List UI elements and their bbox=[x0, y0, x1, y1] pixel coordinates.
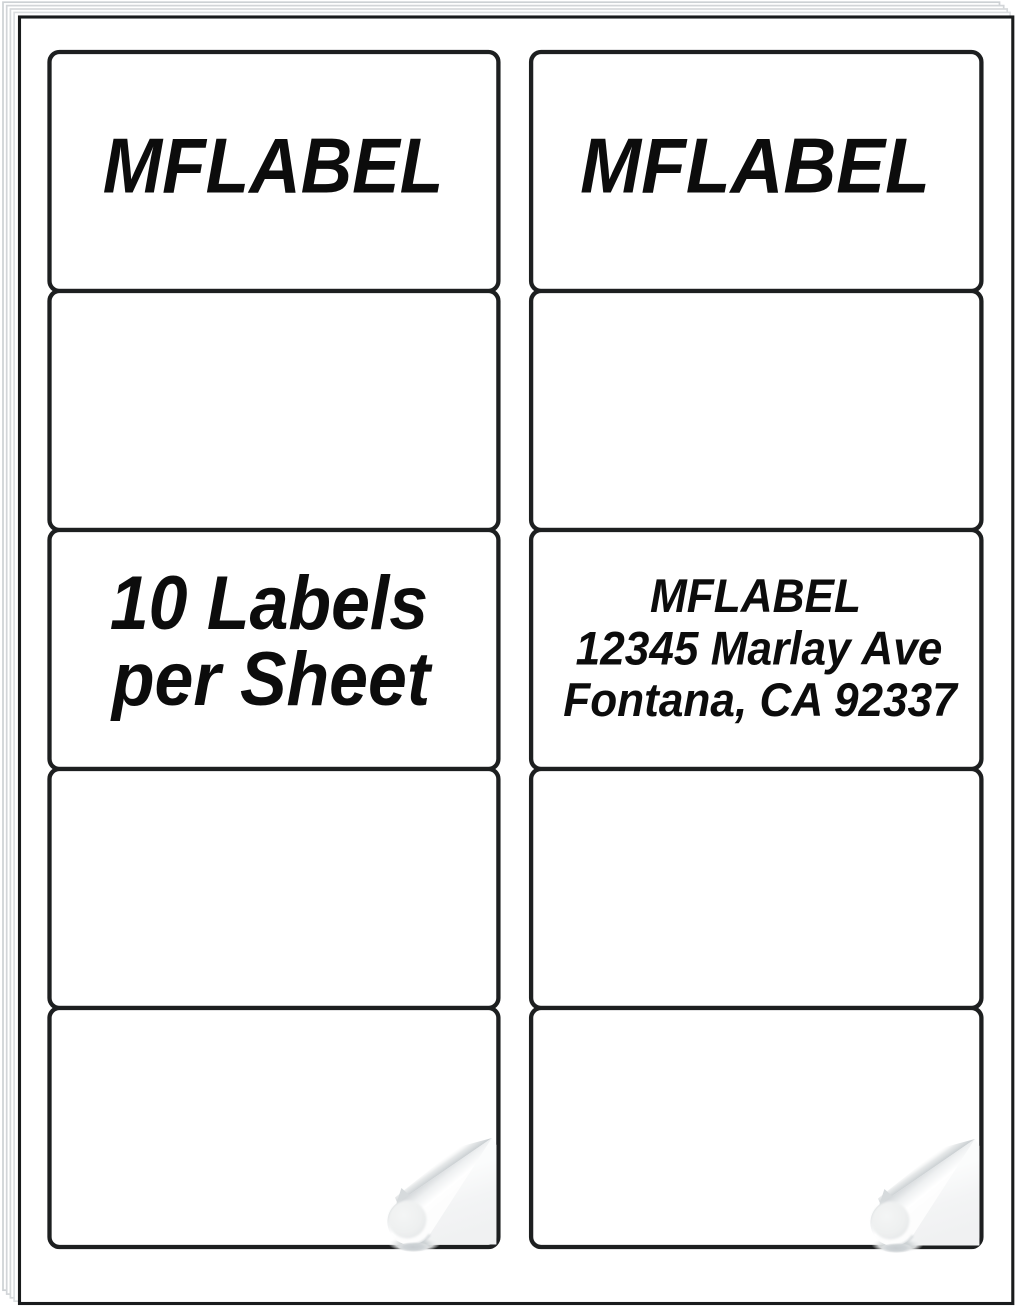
svg-text:MFLABEL: MFLABEL bbox=[580, 123, 930, 209]
svg-text:MFLABEL: MFLABEL bbox=[103, 123, 444, 209]
svg-text:Fontana, CA 92337: Fontana, CA 92337 bbox=[563, 673, 959, 727]
svg-text:12345 Marlay Ave: 12345 Marlay Ave bbox=[576, 621, 943, 675]
svg-text:10 Labels: 10 Labels bbox=[110, 560, 428, 646]
svg-text:MFLABEL: MFLABEL bbox=[650, 569, 861, 623]
svg-text:per Sheet: per Sheet bbox=[110, 636, 433, 722]
